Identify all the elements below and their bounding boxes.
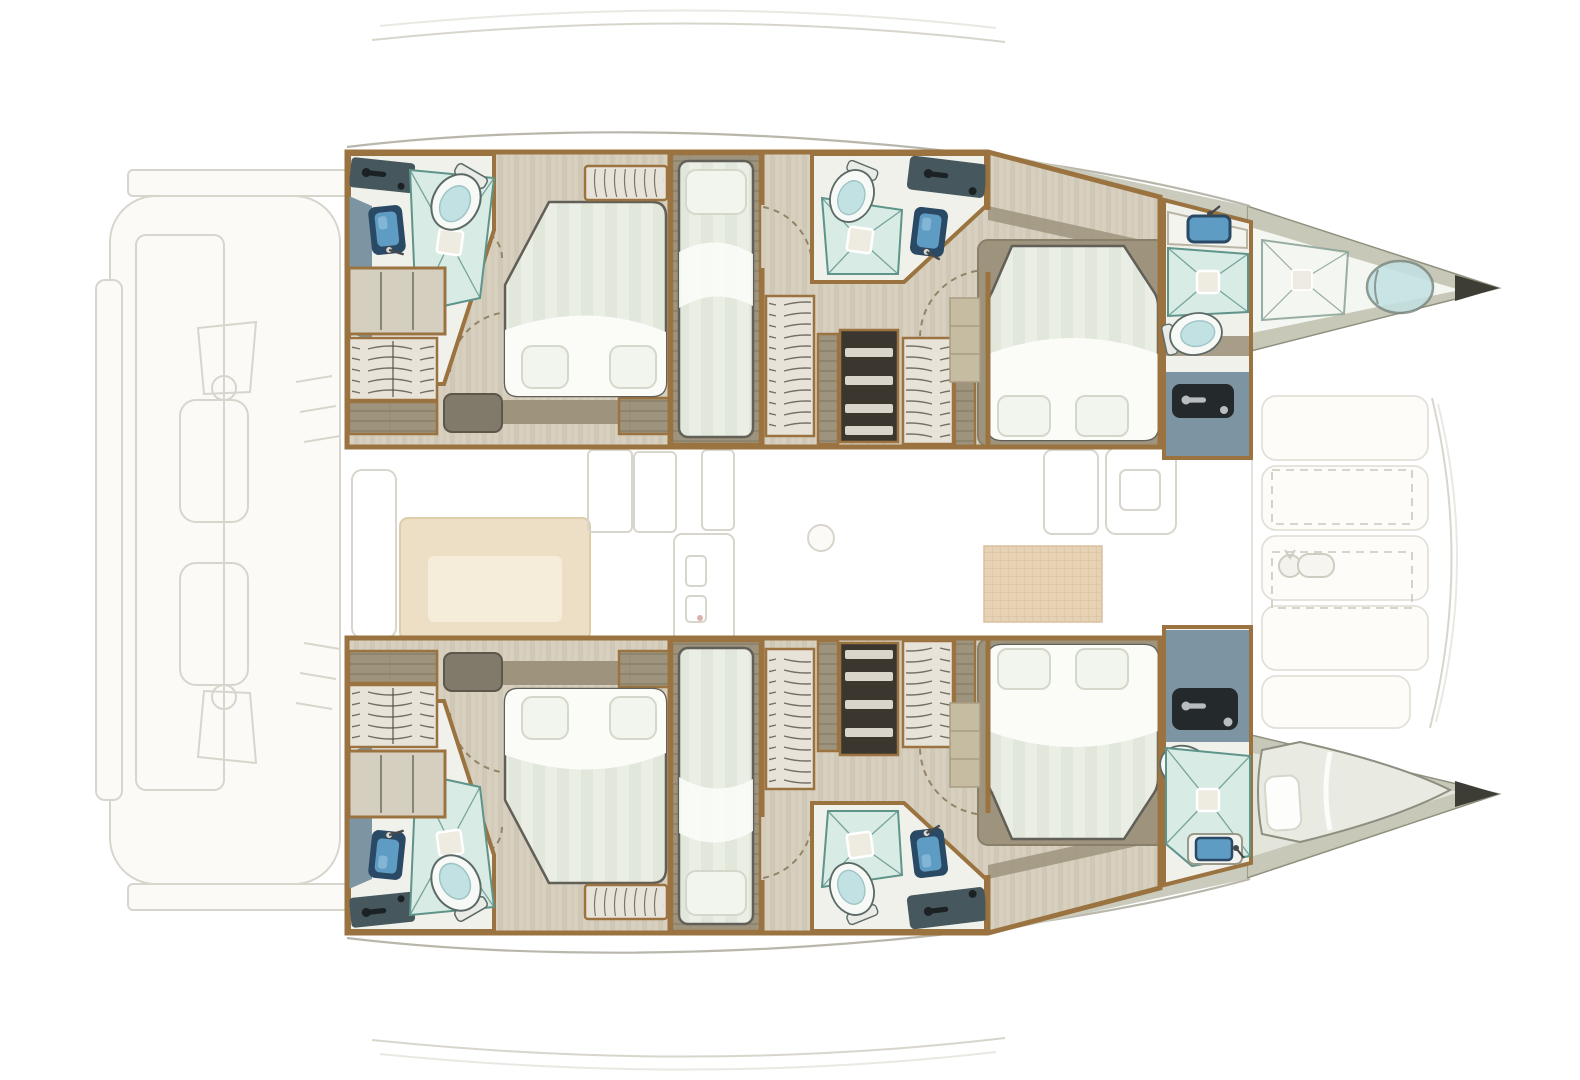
aft-crossbeam-top (128, 170, 348, 196)
starboard-bow (1247, 734, 1499, 878)
toilet-icon (1367, 261, 1433, 313)
bow-tip (1455, 275, 1499, 301)
deck-locker (1262, 466, 1428, 530)
shower-drain (1197, 271, 1219, 293)
counter-knob (1220, 406, 1228, 414)
floor-plan-canvas: Top-down deck plan of a sailing catamara… (0, 0, 1580, 1080)
nav-seat-cushion (1120, 470, 1160, 510)
shower-drain (1197, 789, 1219, 811)
table-leg (808, 525, 834, 551)
aft-cockpit-ghost (96, 170, 348, 910)
chaise-ghost (352, 470, 396, 638)
galley-unit (634, 452, 676, 532)
deck-locker (1262, 396, 1428, 460)
shower (1166, 748, 1250, 866)
shower (1168, 248, 1248, 316)
saloon-ghost (352, 428, 1176, 658)
fridge-ghost (674, 534, 734, 642)
foredeck-ghost (1252, 352, 1457, 732)
port-hull-interior (347, 152, 1166, 447)
fridge-handle (686, 556, 706, 586)
hardtop-edge-bottom (372, 1038, 1005, 1057)
pillow (1264, 775, 1302, 831)
counter-knob (1224, 718, 1233, 727)
hardtop-edge-bottom2 (380, 1052, 996, 1070)
dark-counter (1172, 384, 1234, 418)
sink-bowl (1196, 838, 1232, 860)
woven-floor-mat (984, 546, 1102, 622)
aft-crossbeam-bottom (128, 884, 348, 910)
deck-locker (1262, 676, 1410, 728)
shower-drain (1292, 270, 1312, 290)
catamaran-floor-plan: Top-down deck plan of a sailing catamara… (0, 0, 1580, 1080)
deck-locker (1262, 606, 1428, 670)
saloon-sofa-cushion (428, 556, 562, 622)
nav-console-ghost (1044, 450, 1098, 534)
bow-crossbeam-line2 (1436, 404, 1457, 722)
hardtop-edge-top (372, 23, 1005, 42)
dark-counter (1172, 688, 1238, 730)
port-forward-head (1160, 200, 1251, 458)
hardtop-edge-top2 (380, 10, 996, 28)
bow-crossbeam-line (1430, 398, 1452, 728)
port-bow (1247, 206, 1499, 352)
bow-tip (1455, 781, 1499, 807)
sink-bowl (1188, 216, 1230, 242)
fridge-handle (686, 596, 706, 622)
windlass-drum (1298, 554, 1334, 577)
windlass-icon (1279, 550, 1334, 577)
galley-unit (702, 450, 734, 530)
swim-platform (96, 280, 122, 800)
starboard-forward-head (1153, 627, 1251, 885)
nav-seat-ghost (1106, 448, 1176, 534)
starboard-hull-interior (347, 638, 1166, 933)
fridge-latch-dot (697, 615, 703, 621)
forepeak-crew-berth (1258, 742, 1450, 842)
galley-unit (588, 450, 632, 532)
